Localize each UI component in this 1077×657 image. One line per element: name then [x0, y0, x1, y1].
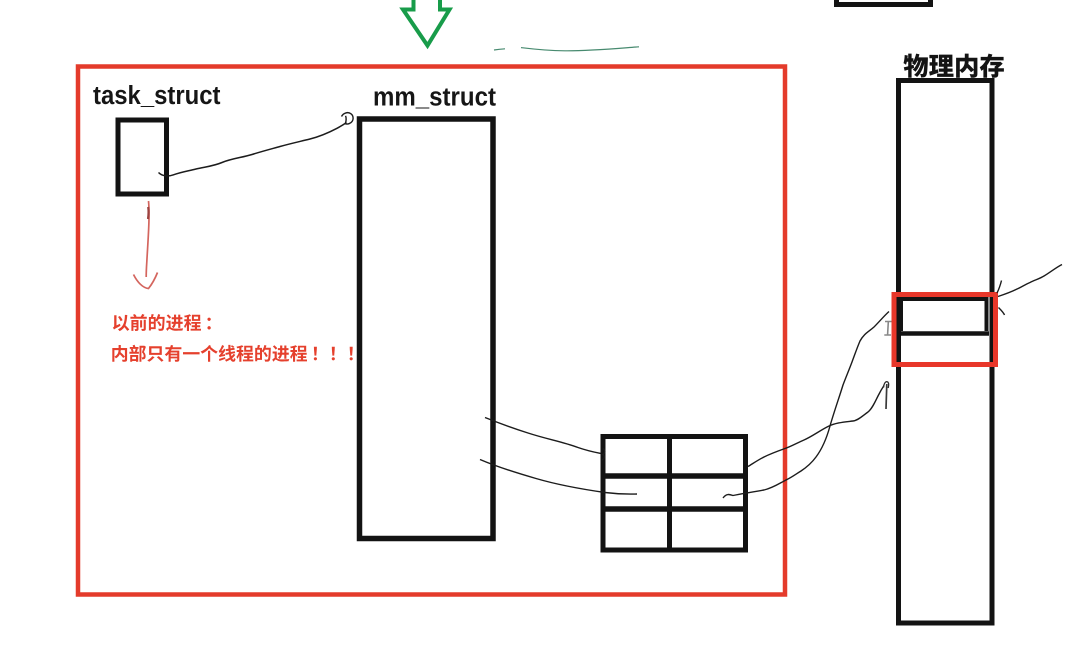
svg-text:task_struct: task_struct — [93, 82, 221, 110]
svg-text:mm_struct: mm_struct — [373, 84, 496, 112]
